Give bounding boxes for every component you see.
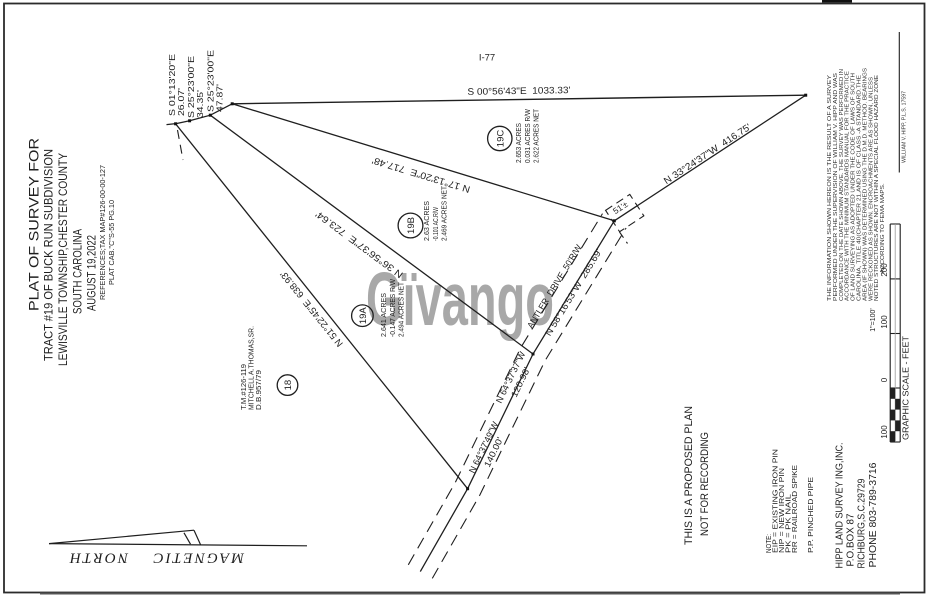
svg-text:2.494 ACRES NET: 2.494 ACRES NET [397, 282, 406, 337]
svg-text:26.07': 26.07' [176, 88, 186, 116]
svg-text:MITCHELL A.THOMAS,SR.: MITCHELL A.THOMAS,SR. [249, 326, 256, 410]
svg-text:0.031 ACRES R/W: 0.031 ACRES R/W [523, 109, 532, 163]
svg-text:RR = RAILROAD SPIKE: RR = RAILROAD SPIKE [790, 465, 799, 553]
svg-text:19A: 19A [358, 307, 369, 325]
svg-text:34.35': 34.35' [195, 90, 205, 118]
svg-text:AUGUST 19,2022: AUGUST 19,2022 [85, 235, 99, 311]
svg-text:REFERENCES;TAX MAP#126-00-00-1: REFERENCES;TAX MAP#126-00-00-127 [100, 165, 107, 300]
svg-text:PLAT CAB."C"S-55 PG.10: PLAT CAB."C"S-55 PG.10 [109, 200, 116, 285]
svg-text:GRAPHIC SCALE - FEET: GRAPHIC SCALE - FEET [902, 336, 911, 440]
svg-text:0: 0 [880, 377, 889, 382]
svg-text:TRACT #19 OF BUCK RUN SUBDIVIS: TRACT #19 OF BUCK RUN SUBDIVISION [42, 149, 56, 361]
svg-text:2.63 ACRES: 2.63 ACRES [422, 201, 431, 241]
svg-text:19C: 19C [495, 130, 506, 148]
svg-text:LEWISVILLE TOWNSHIP,CHESTER CO: LEWISVILLE TOWNSHIP,CHESTER COUNTY [56, 153, 70, 366]
svg-text:100: 100 [880, 315, 889, 329]
svg-text:P.P. PINCHED PIPE: P.P. PINCHED PIPE [806, 477, 815, 553]
svg-text:NOT FOR RECORDING: NOT FOR RECORDING [699, 432, 711, 536]
svg-text:2.653 ACRES: 2.653 ACRES [514, 123, 523, 163]
svg-text:MAGNETIC NORTH: MAGNETIC NORTH [68, 550, 245, 566]
svg-text:PHONE 803-789-3716: PHONE 803-789-3716 [867, 462, 879, 567]
svg-text:SOUTH CAROLINA: SOUTH CAROLINA [71, 229, 85, 314]
svg-text:-0.101 AC.R/W: -0.101 AC.R/W [431, 207, 440, 241]
svg-text:D.B.957/79: D.B.957/79 [256, 370, 263, 410]
svg-text:WILLIAM V. HIPP, P.L.S. 17597: WILLIAM V. HIPP, P.L.S. 17597 [902, 91, 908, 163]
svg-text:18: 18 [283, 380, 294, 391]
svg-text:2.622 ACRES NET: 2.622 ACRES NET [532, 109, 541, 163]
svg-text:S 00°56'43"E 1033.33': S 00°56'43"E 1033.33' [467, 85, 570, 98]
svg-text:-0.147 ACRES R/W: -0.147 ACRES R/W [388, 279, 397, 337]
svg-text:19B: 19B [406, 217, 417, 234]
svg-text:ACCORDING TO FEMA MAPS.: ACCORDING TO FEMA MAPS. [880, 183, 886, 273]
svg-text:THIS IS A PROPOSED PLAN: THIS IS A PROPOSED PLAN [683, 406, 695, 545]
svg-text:PLAT OF SURVEY FOR: PLAT OF SURVEY FOR [26, 138, 42, 311]
svg-text:200: 200 [880, 263, 889, 277]
svg-text:2.469 ACRES NET: 2.469 ACRES NET [440, 186, 449, 241]
svg-text:T.M.#126-119: T.M.#126-119 [241, 364, 248, 410]
svg-text:I-77: I-77 [479, 53, 495, 64]
svg-text:100: 100 [880, 425, 889, 439]
svg-text:RICHBURG,S.C.29729: RICHBURG,S.C.29729 [856, 478, 868, 568]
svg-text:1"=100': 1"=100' [870, 308, 877, 331]
svg-text:2.641 ACRES: 2.641 ACRES [379, 293, 388, 337]
svg-text:47.87': 47.87' [215, 84, 225, 112]
